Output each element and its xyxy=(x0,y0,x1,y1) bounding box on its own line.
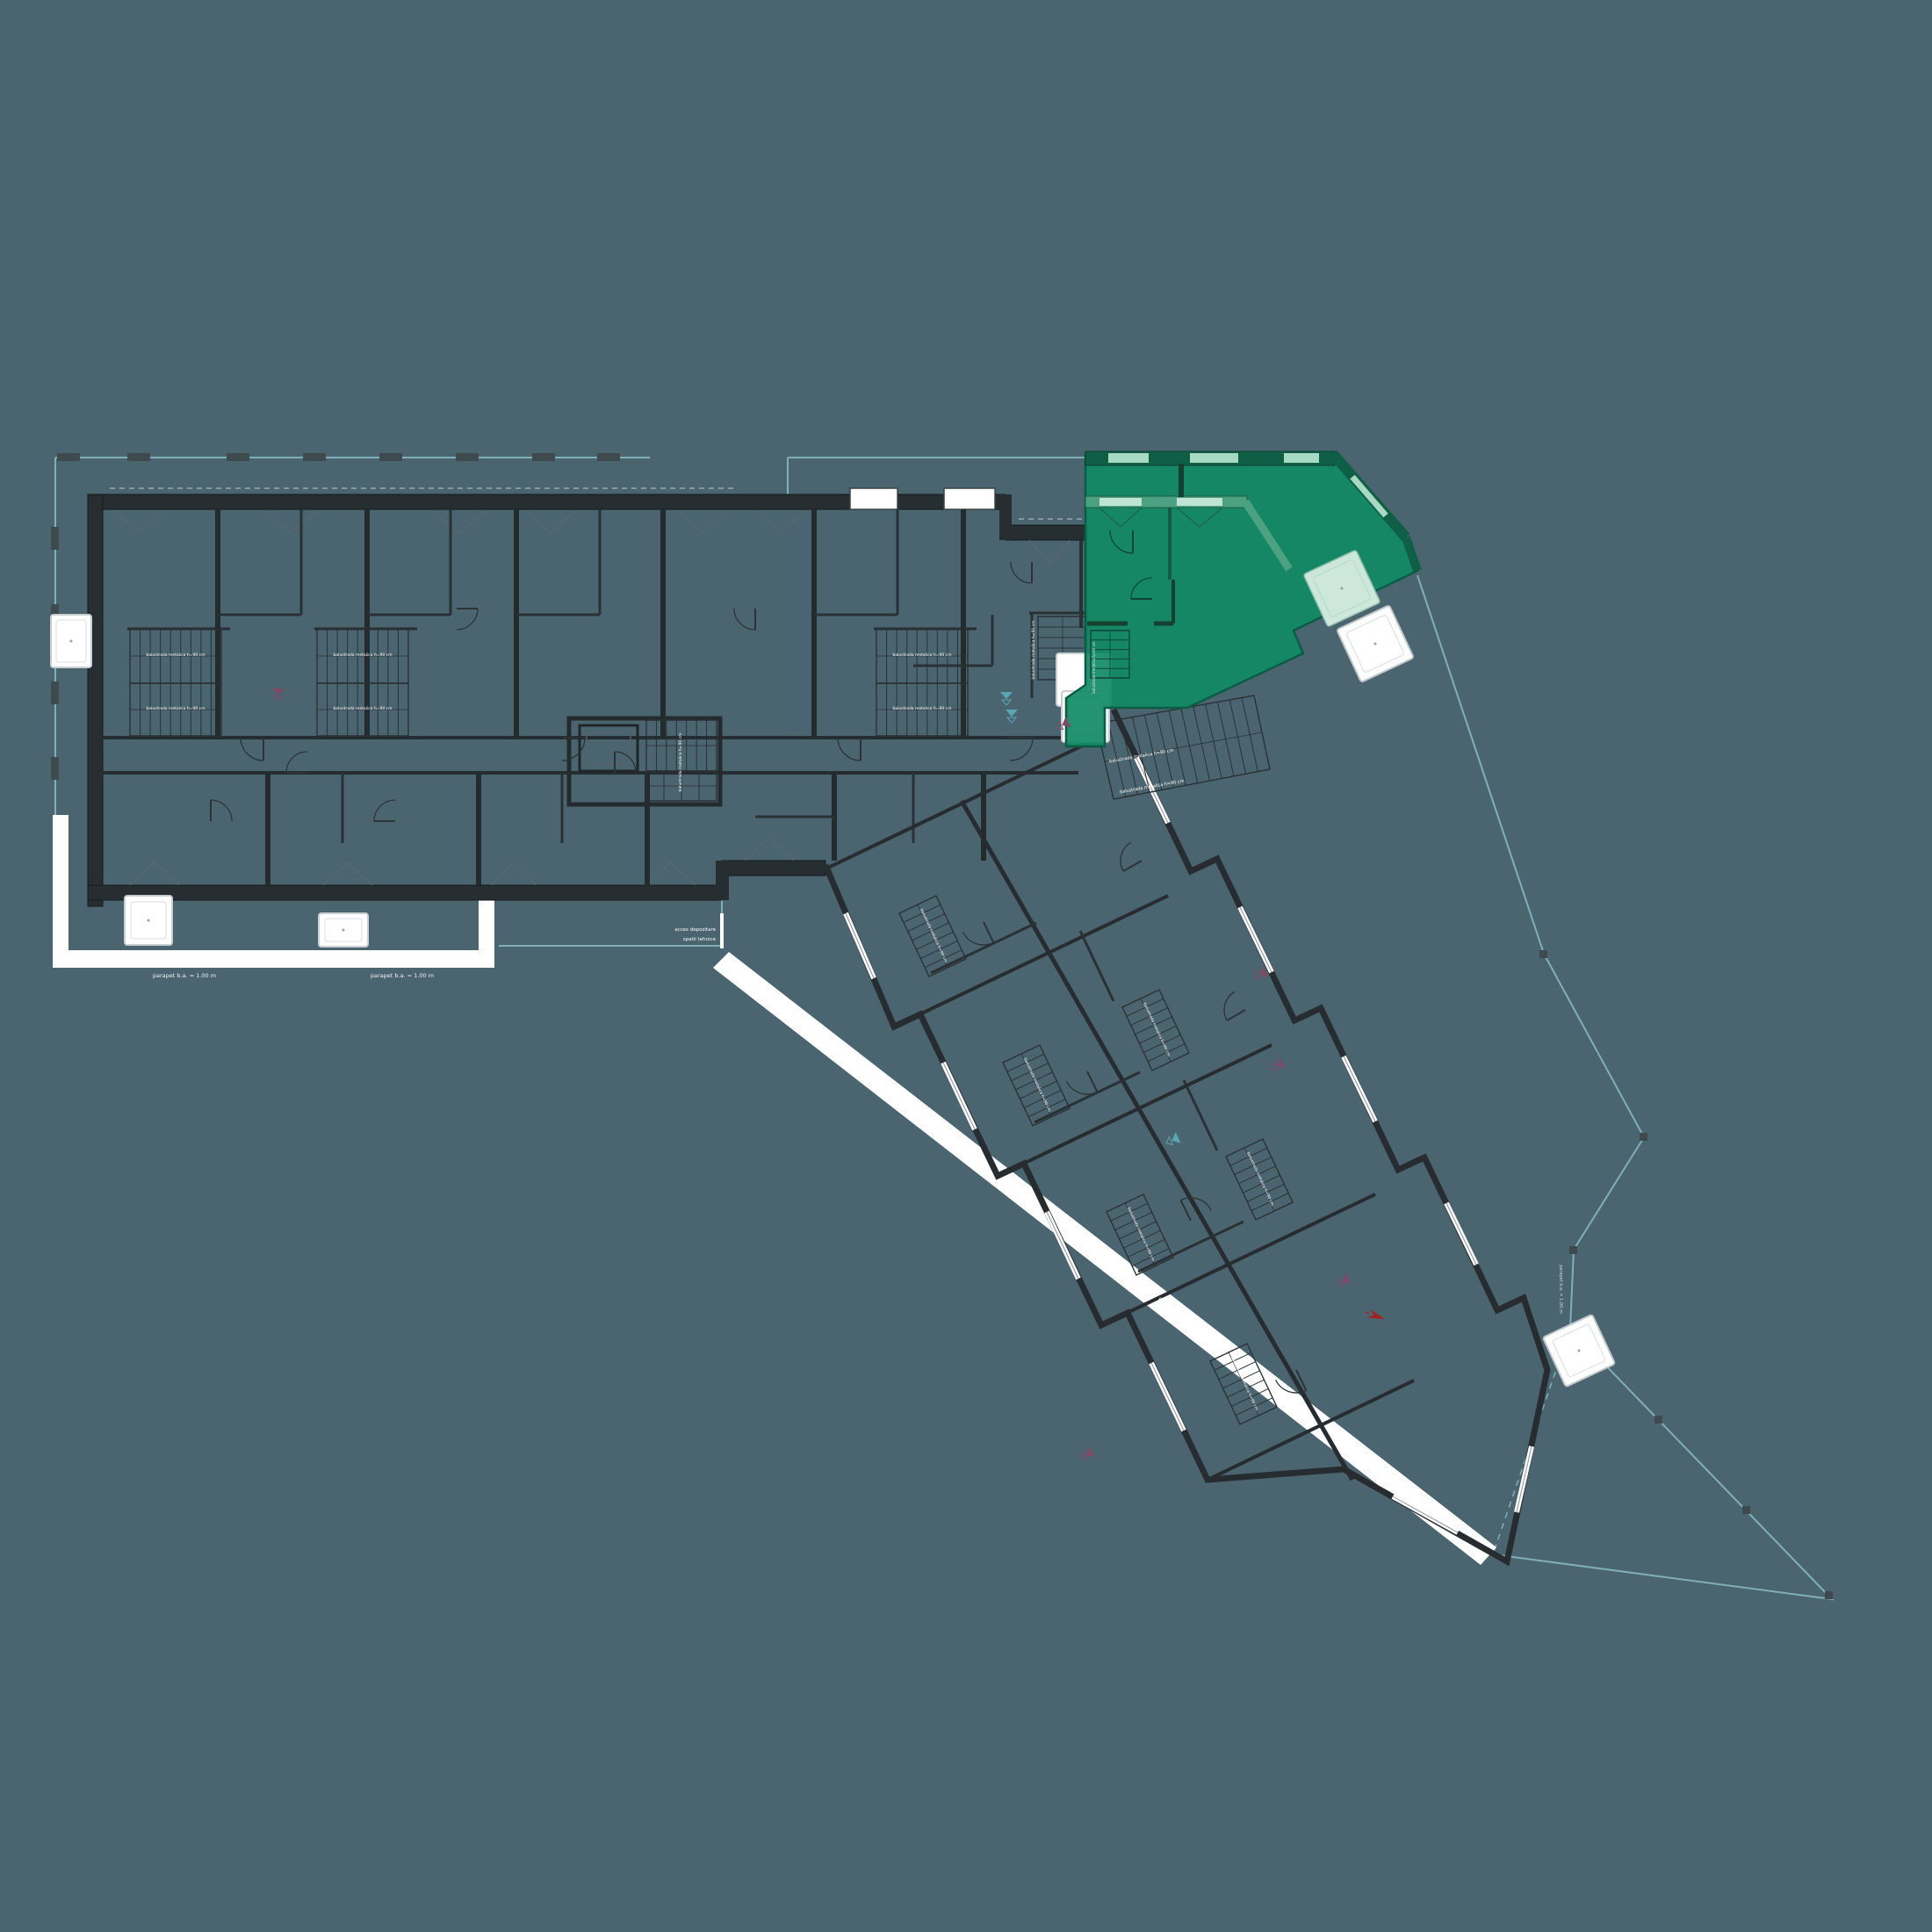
plan-label: parapet b.a. = 1.00 m xyxy=(1558,1265,1563,1314)
plan-label: balustrada metalica h=90 cm xyxy=(147,706,205,711)
plan-label: balustrada metalica h=90 cm xyxy=(334,652,393,658)
floorplan-canvas: balustrada metalica h=90 cmbalustrada me… xyxy=(0,0,1932,1932)
plan-label: balustrada metalica h=90 cm xyxy=(893,706,952,711)
plan-label: balustrada metalica h=90 cm xyxy=(1031,621,1036,680)
floor-plan-svg: balustrada metalica h=90 cmbalustrada me… xyxy=(0,0,1932,1932)
plan-label: spatii tehnice xyxy=(683,937,717,942)
plan-label: balustrada metalica h=90 cm xyxy=(334,706,393,711)
plan-label: balustrada metalica h=90 cm xyxy=(893,652,952,658)
floor-plan: balustrada metalica h=90 cmbalustrada me… xyxy=(0,0,1932,1932)
plan-label: balustrada metalica h=90 cm xyxy=(147,652,205,658)
plan-label: balustrada metalica h=90 cm xyxy=(1092,641,1096,694)
plan-label: parapet b.a. = 1.00 m xyxy=(371,972,434,979)
plan-label: balustrada metalica h=90 cm xyxy=(678,733,683,792)
plan-label: parapet b.a. = 1.00 m xyxy=(153,972,216,979)
plan-label: acces depozitare xyxy=(674,927,716,933)
